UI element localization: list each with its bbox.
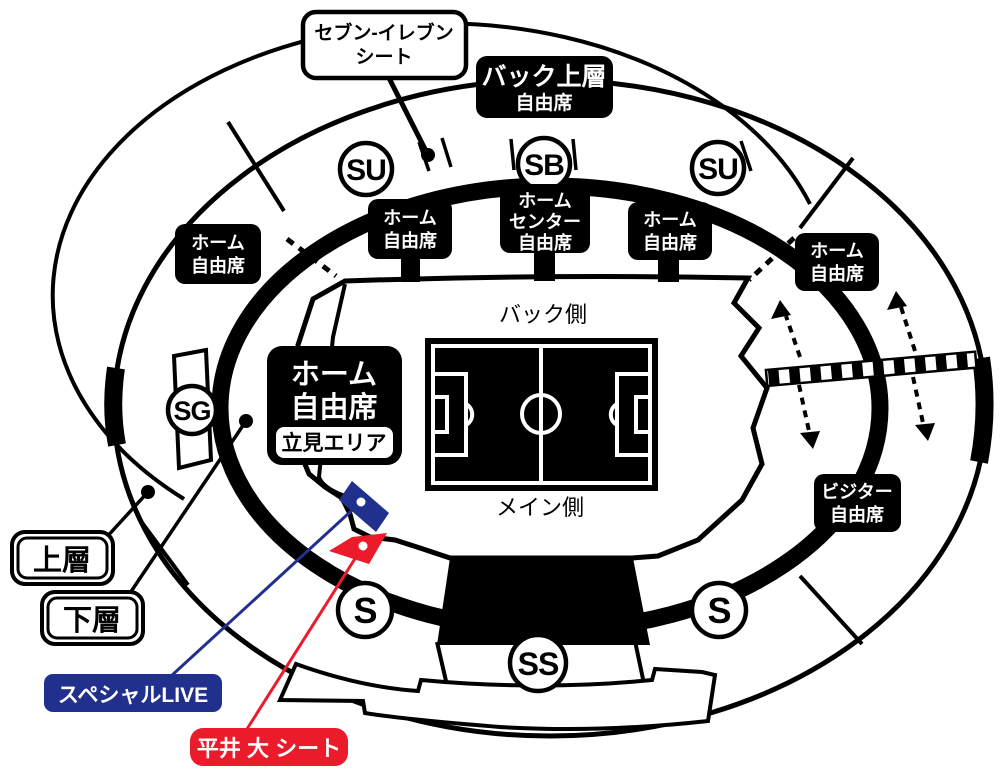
home-free-right-line1: ホーム [810, 241, 863, 261]
stadium-map-svg: バック側 メイン側 SU SB SU SG S SS S バック上層 自由席 ホ… [0, 0, 1000, 779]
home-free-right-line2: 自由席 [810, 263, 864, 284]
gate-s-right-label: S [707, 590, 730, 631]
home-free-top-right-line1: ホーム [643, 210, 696, 230]
main-stand-block [437, 558, 650, 645]
home-free-top-left-line2: 自由席 [383, 230, 437, 251]
upper-tier-label: 上層 [33, 544, 91, 577]
visitor-line2: 自由席 [830, 504, 884, 525]
home-center-line1: ホーム [518, 191, 571, 211]
lower-tier-pointer-dot [239, 414, 253, 428]
special-live-marker-dot [355, 496, 367, 508]
back-side-label: バック側 [499, 302, 587, 327]
gate-sb-label: SB [524, 149, 564, 182]
soccer-field [425, 338, 658, 491]
home-free-top-left-line1: ホーム [383, 208, 436, 228]
hirai-dai-label: 平井 大 シート [197, 736, 341, 761]
label-stem-left [401, 256, 420, 282]
label-stem-center [534, 249, 555, 281]
seven-eleven-pointer-dot [421, 148, 435, 162]
standing-area-label: 立見エリア [282, 431, 387, 455]
back-upper-line2: 自由席 [515, 91, 572, 114]
seven-eleven-box [303, 12, 466, 78]
seven-eleven-line1: セブン-イレブン [314, 21, 453, 44]
home-center-line2: センター [509, 212, 581, 232]
home-center-line3: 自由席 [518, 232, 572, 253]
label-stem-right [658, 257, 679, 282]
right-rim-block [979, 358, 985, 462]
home-free-left-line1: ホーム [191, 233, 244, 253]
left-rim-block [113, 368, 117, 445]
special-live-label: スペシャルLIVE [58, 684, 208, 707]
lower-tier-label: 下層 [63, 605, 121, 637]
stadium-seating-map: バック側 メイン側 SU SB SU SG S SS S バック上層 自由席 ホ… [0, 0, 1000, 779]
upper-tier-pointer-dot [141, 485, 155, 499]
hirai-dai-marker-dot [357, 540, 369, 552]
home-free-top-right-line2: 自由席 [643, 232, 697, 253]
home-standing-line1: ホーム [291, 359, 377, 391]
home-free-left-line2: 自由席 [191, 255, 245, 276]
gate-s-left-label: S [353, 590, 376, 631]
gate-ss-label: SS [518, 646, 559, 682]
back-upper-line1: バック上層 [481, 63, 606, 91]
gate-su-left-label: SU [346, 154, 386, 187]
seven-eleven-line2: シート [355, 47, 412, 68]
gate-su-right-label: SU [698, 153, 738, 186]
visitor-line1: ビジター [821, 482, 893, 502]
home-standing-line2: 自由席 [290, 390, 377, 424]
main-side-label: メイン側 [496, 495, 584, 520]
gate-sg-label: SG [173, 396, 210, 426]
